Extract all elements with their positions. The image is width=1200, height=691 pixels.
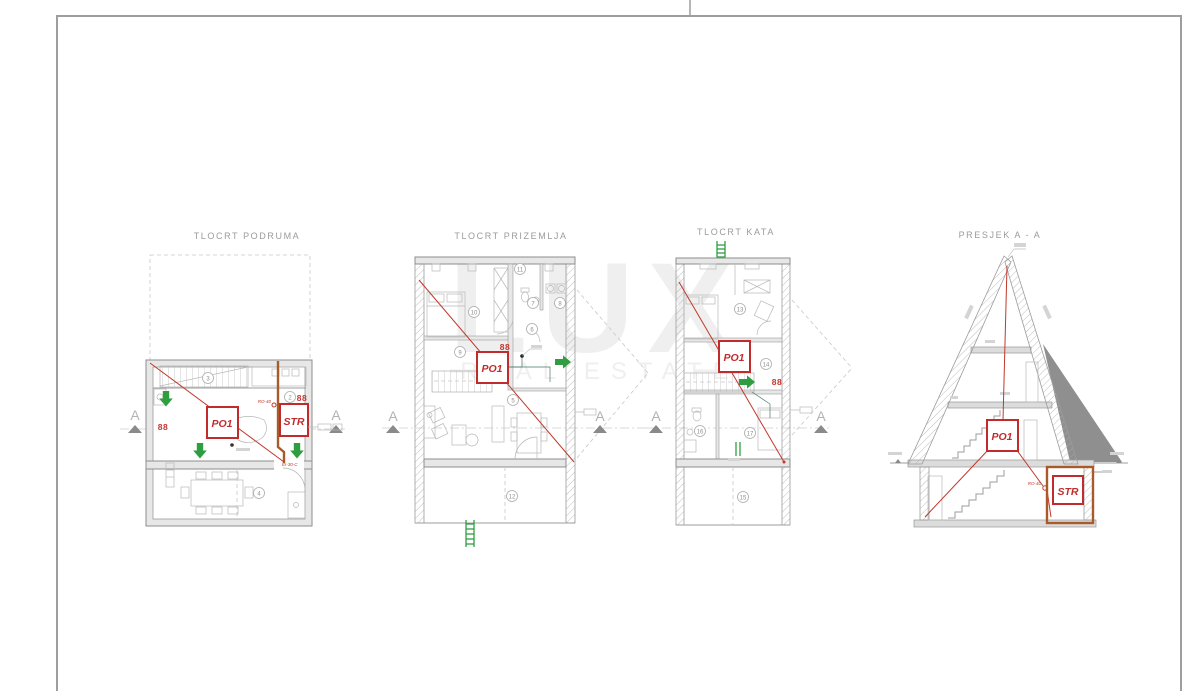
evacuation-line [1003, 266, 1007, 420]
ladder-icon [466, 520, 474, 547]
duct-label: RO-40 [1028, 481, 1042, 486]
door [928, 476, 942, 520]
door [1024, 420, 1037, 460]
svg-text:15: 15 [740, 496, 747, 502]
room-number: 4 [254, 488, 265, 499]
room-number: 7 [528, 298, 539, 309]
storage-str-label: STR [284, 416, 305, 428]
section-marker-a: A [130, 407, 140, 423]
unit-po1-label: PO1 [481, 363, 502, 375]
svg-text:10: 10 [471, 311, 478, 317]
section-marker-a: A [816, 408, 826, 424]
floor-plan-sheet: LUX REAL ESTATE TLOCRT PODRUMA [0, 0, 1200, 691]
room-number: 11 [515, 264, 526, 275]
toilet [693, 411, 701, 421]
panel-presjek-a-a: PRESJEK A - A RO-40 PO1 [888, 230, 1128, 527]
persons-icon: 88 [158, 422, 168, 432]
room-number: 5 [508, 395, 519, 406]
room-number: 15 [738, 492, 749, 503]
section-marker-a: A [388, 408, 398, 424]
panel-title: PRESJEK A - A [959, 230, 1042, 240]
duct-label: RO-40 [258, 399, 272, 404]
panel-title: TLOCRT KATA [697, 227, 775, 237]
unit-po1-label: PO1 [211, 418, 232, 430]
room-number: 2 [285, 392, 296, 403]
storage-str-label: STR [1058, 486, 1079, 498]
evacuation-line [925, 449, 989, 517]
svg-text:13: 13 [737, 308, 744, 314]
room-number: 17 [745, 428, 756, 439]
section-triangle-icon [593, 425, 607, 433]
room-number: 8 [555, 298, 566, 309]
panel-title: TLOCRT PRIZEMLJA [454, 231, 567, 241]
room-number: 3 [203, 373, 214, 384]
fire-door-label: EI-30-C [282, 462, 298, 467]
persons-icon: 88 [772, 377, 782, 387]
svg-text:16: 16 [697, 430, 704, 436]
room-number: 16 [695, 426, 706, 437]
room-number: 12 [507, 491, 518, 502]
svg-text:14: 14 [763, 363, 770, 369]
panel-tlocrt-kata: TLOCRT KATA 88 [645, 227, 852, 525]
section-marker-a: A [331, 407, 341, 423]
svg-text:17: 17 [747, 432, 754, 438]
upper-floor-outline-dashed [150, 255, 310, 365]
persons-icon: 88 [500, 342, 510, 352]
section-triangle-icon [814, 425, 828, 433]
room-number: 6 [527, 324, 538, 335]
section-marker-a: A [651, 408, 661, 424]
room-number: 9 [455, 347, 466, 358]
svg-text:11: 11 [517, 268, 524, 274]
svg-text:12: 12 [509, 495, 516, 501]
panel-title: TLOCRT PODRUMA [194, 231, 301, 241]
room-number: 14 [761, 359, 772, 370]
stairs [948, 470, 1004, 518]
unit-po1-label: PO1 [723, 352, 744, 364]
panel-tlocrt-podruma: TLOCRT PODRUMA [120, 231, 345, 526]
section-marker-a: A [595, 408, 605, 424]
section-triangle-icon [386, 425, 400, 433]
room-number: 10 [469, 307, 480, 318]
room-number: 13 [735, 304, 746, 315]
unit-po1-label: PO1 [991, 431, 1012, 443]
persons-icon: 88 [297, 393, 307, 403]
section-triangle-icon [649, 425, 663, 433]
